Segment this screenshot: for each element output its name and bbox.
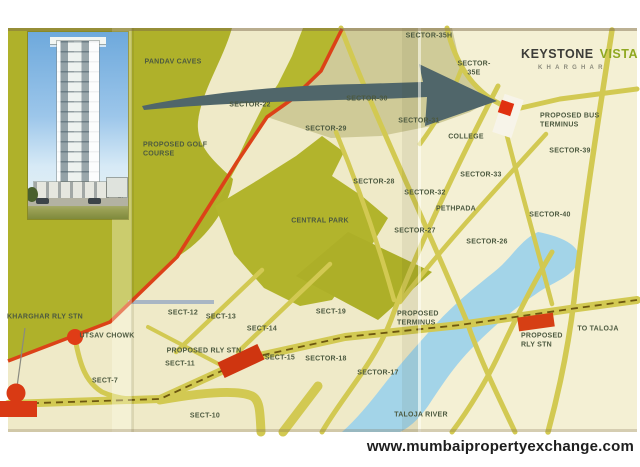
tower xyxy=(57,41,99,183)
fold-shadow-right xyxy=(402,28,418,432)
fold-line-right xyxy=(418,28,421,432)
car xyxy=(88,198,101,205)
brochure-location-map: KEYSTONE VISTA KHARGHAR PANDAV CAVESSECT… xyxy=(0,0,640,467)
product-name: VISTA xyxy=(600,48,638,61)
map-top-edge xyxy=(8,28,637,31)
entrance-gate xyxy=(107,178,127,197)
brand-name: KEYSTONE xyxy=(521,48,594,61)
kharghar-station-dome xyxy=(7,384,26,403)
kharghar-station-base xyxy=(0,401,37,417)
building-photo xyxy=(28,32,128,219)
keystone-vista-logo: KEYSTONE VISTA KHARGHAR xyxy=(518,48,638,71)
fold-line-left xyxy=(131,28,134,432)
brand-location: KHARGHAR xyxy=(538,65,638,71)
utsav-chowk-dot xyxy=(67,329,83,345)
car xyxy=(36,198,49,205)
map-bottom-edge xyxy=(8,429,637,432)
website-url: www.mumbaipropertyexchange.com xyxy=(367,438,634,456)
